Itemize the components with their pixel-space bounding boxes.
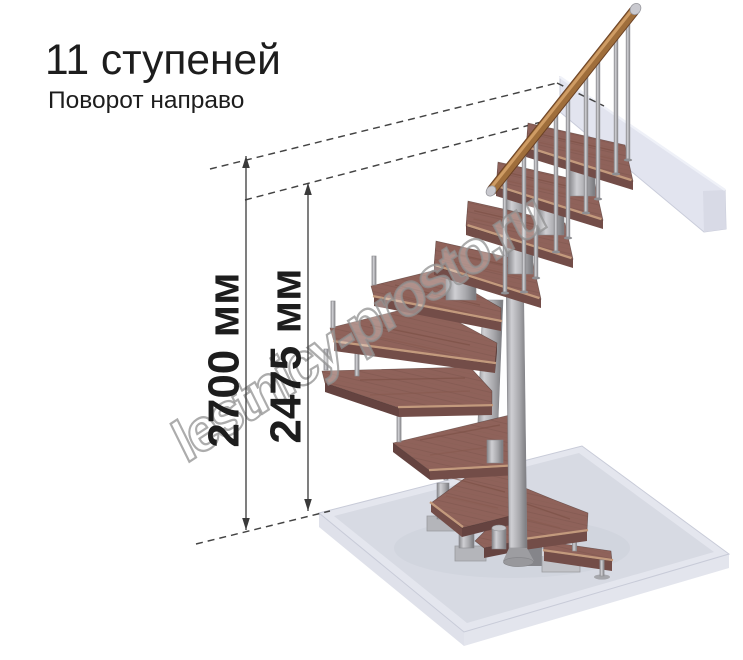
svg-text:Поворот направо: Поворот направо — [48, 87, 244, 114]
svg-text:11 ступеней: 11 ступеней — [45, 37, 281, 84]
svg-text:2700 мм: 2700 мм — [200, 272, 249, 447]
svg-text:2475 мм: 2475 мм — [262, 268, 311, 443]
